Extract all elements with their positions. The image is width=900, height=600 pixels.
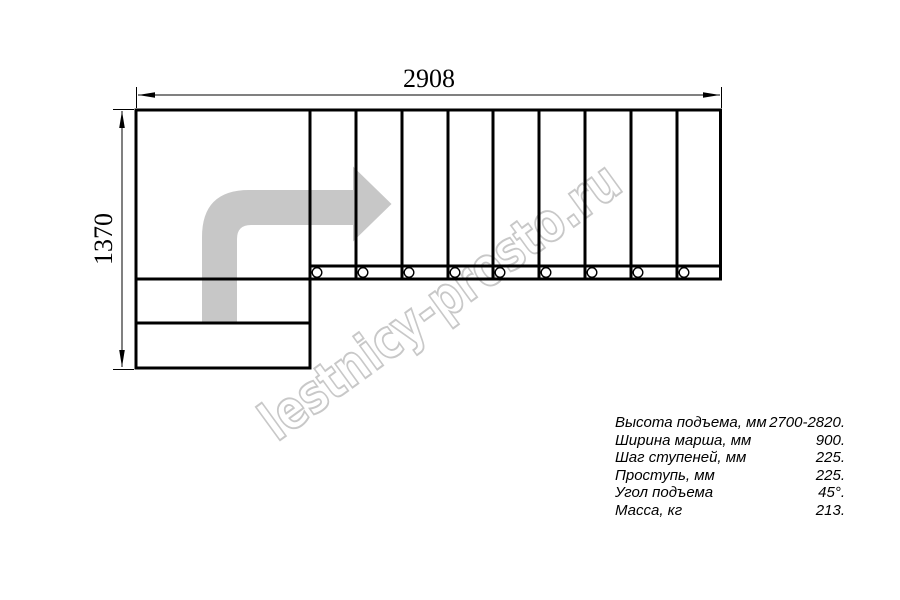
spec-value: 2700-2820. <box>769 414 845 432</box>
spec-label: Угол подъема <box>615 484 713 502</box>
spec-value: 225. <box>816 467 845 485</box>
spec-value: 900. <box>816 432 845 450</box>
spec-row-height: Высота подъема, мм 2700-2820. <box>615 414 845 432</box>
spec-value: 225. <box>816 449 845 467</box>
spec-label: Проступь, мм <box>615 467 715 485</box>
height-dimension-label: 1370 <box>89 213 118 265</box>
dim-arrow-down-icon <box>119 350 125 367</box>
spec-value: 45°. <box>818 484 845 502</box>
spec-label: Шаг ступеней, мм <box>615 449 746 467</box>
dim-arrow-up-icon <box>119 111 125 128</box>
spec-label: Масса, кг <box>615 502 682 520</box>
spec-label: Высота подъема, мм <box>615 414 767 432</box>
spec-row-tread: Проступь, мм 225. <box>615 467 845 485</box>
dim-arrow-right-icon <box>703 92 720 98</box>
stair-direction-arrow <box>202 167 392 325</box>
staircase-drawing-page: lestnicy-prosto.ru <box>0 0 900 600</box>
spec-label: Ширина марша, мм <box>615 432 751 450</box>
width-dimension: 2908 <box>137 64 722 108</box>
spec-row-mass: Масса, кг 213. <box>615 502 845 520</box>
spec-row-march-width: Ширина марша, мм 900. <box>615 432 845 450</box>
height-dimension: 1370 <box>89 110 134 370</box>
specifications-table: Высота подъема, мм 2700-2820. Ширина мар… <box>615 414 845 519</box>
dim-arrow-left-icon <box>138 92 155 98</box>
width-dimension-label: 2908 <box>403 64 455 93</box>
spec-row-angle: Угол подъема 45°. <box>615 484 845 502</box>
spec-row-step-pitch: Шаг ступеней, мм 225. <box>615 449 845 467</box>
spec-value: 213. <box>816 502 845 520</box>
